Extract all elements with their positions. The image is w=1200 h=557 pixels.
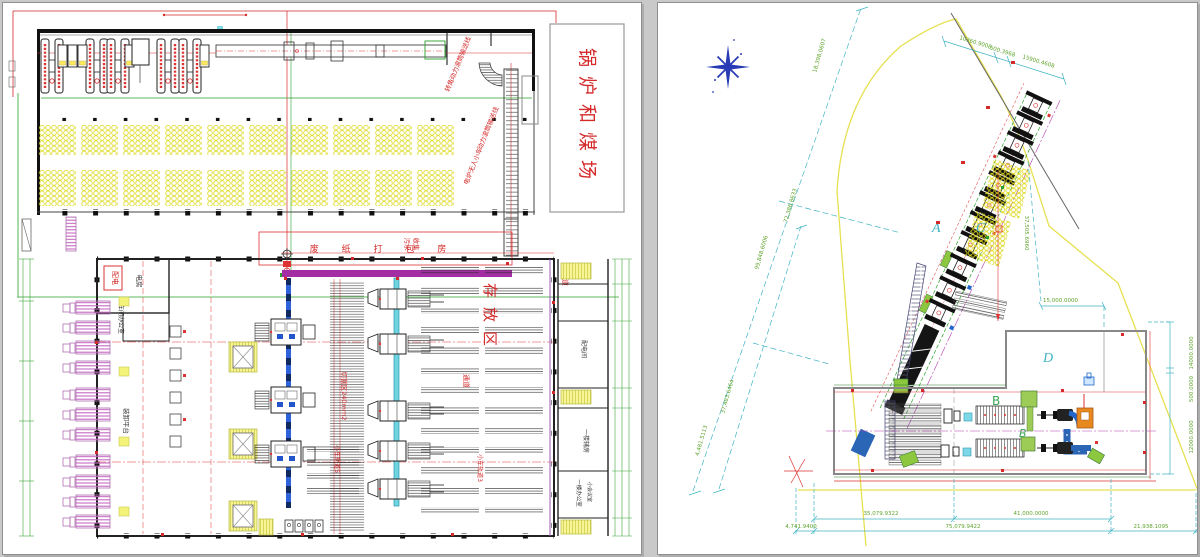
label-aux-room: 一楼辅房 — [582, 429, 590, 453]
label-aisle-1: 通道 — [462, 374, 471, 388]
elevator-1 — [229, 342, 257, 372]
compass-icon — [706, 39, 750, 93]
label-power-box: 配电 — [111, 271, 120, 285]
dim-left-4: 4,481.5113 — [695, 424, 710, 456]
label-loading-platform: 装卸平台 — [122, 408, 131, 434]
label-office-1f: 一楼办公室 — [575, 479, 583, 507]
coal-stacks-row-1 — [39, 125, 455, 155]
dim-bottom-1: 4,741.9400 — [785, 524, 817, 530]
site-plan-drawing: 18,398.0607 72,386.8633 99,848.6006 37,4… — [658, 3, 1197, 554]
elevator-2 — [229, 429, 257, 459]
buffer-racks — [889, 404, 941, 467]
zone-label-b: B — [992, 394, 1000, 408]
corner-marks — [784, 456, 813, 487]
zone-label-d: D — [1042, 351, 1053, 366]
coal-stacks-row-2 — [39, 170, 455, 206]
label-storage-zone: 存放区 — [481, 283, 499, 355]
dim-bottom-top-1: 35,079.9322 — [864, 511, 899, 517]
dimension-mid-right — [1028, 161, 1174, 474]
cad-viewer-canvas: 转角动力滚筒输送线 动力滚筒输送线 电炉无人小车 锅炉和煤场 废 纸 打 包 房… — [0, 0, 1200, 557]
zone-label-c: C — [976, 221, 986, 236]
incline-conveyor — [22, 63, 538, 256]
dim-mid-right: 15,000.0000 — [1043, 298, 1078, 304]
dim-left-2: 99,848.6006 — [754, 235, 770, 271]
boiler-coal-yard-title: 锅炉和煤场 — [576, 48, 598, 188]
elevator-3 — [229, 501, 257, 531]
right-annex — [558, 259, 608, 536]
label-power-conveyor: 动力滚筒输送线 — [475, 105, 501, 151]
boiler-machine-row — [41, 39, 446, 93]
label-furnace-cart: 电炉无人小车 — [461, 146, 484, 186]
label-distribution-room: 配电间 — [580, 340, 588, 358]
left-drawing-sheet[interactable]: 转角动力滚筒输送线 动力滚筒输送线 电炉无人小车 锅炉和煤场 废 纸 打 包 房… — [2, 2, 642, 555]
dim-top-right-1: 10360.9008 — [959, 35, 993, 51]
toilet-block — [259, 519, 323, 535]
dim-bottom-3: 21,938.1095 — [1134, 524, 1169, 530]
boiler-coal-label-box: 锅炉和煤场 — [550, 24, 624, 212]
dim-right-3: 12000.0000 — [1189, 420, 1195, 454]
label-sewage-1: 污水 — [403, 238, 412, 252]
green-dimension-lines — [19, 259, 632, 536]
right-drawing-sheet[interactable]: 18,398.0607 72,386.8633 99,848.6006 37,4… — [657, 2, 1198, 555]
label-cart-track-5: 小车轨道5 — [333, 445, 341, 473]
production-line-2 — [941, 437, 1105, 464]
dim-top-right-3: 15900.4608 — [1022, 54, 1056, 70]
label-power-room: 电房 — [135, 275, 144, 288]
label-cart-track-3: 小车轨道3 — [476, 454, 484, 482]
dim-bottom-top-2: 41,000.0000 — [1014, 511, 1049, 517]
label-sewage-2: 收集 — [412, 238, 421, 252]
site-boundary — [798, 13, 1197, 546]
dim-bottom-2: 75,079.9422 — [946, 524, 981, 530]
zone-label-b-italic: B — [1019, 427, 1027, 440]
label-cutting-zone: 切割区240mm2 — [340, 372, 349, 421]
label-workshop-office: 车间办公室 — [117, 304, 125, 334]
label-meeting-room: 小会议室 — [586, 482, 593, 502]
dim-yard-height: 37,505.6960 — [1023, 216, 1029, 251]
dim-top-diagonal: 18,398.0607 — [812, 38, 828, 74]
dim-right-1: 14000.0000 — [1189, 336, 1195, 370]
left-drawing: 转角动力滚筒输送线 动力滚筒输送线 电炉无人小车 锅炉和煤场 废 纸 打 包 房… — [3, 3, 641, 554]
dim-right-2: 500.0000 — [1189, 375, 1195, 402]
dim-left-3: 37,483.6464 — [720, 379, 736, 415]
